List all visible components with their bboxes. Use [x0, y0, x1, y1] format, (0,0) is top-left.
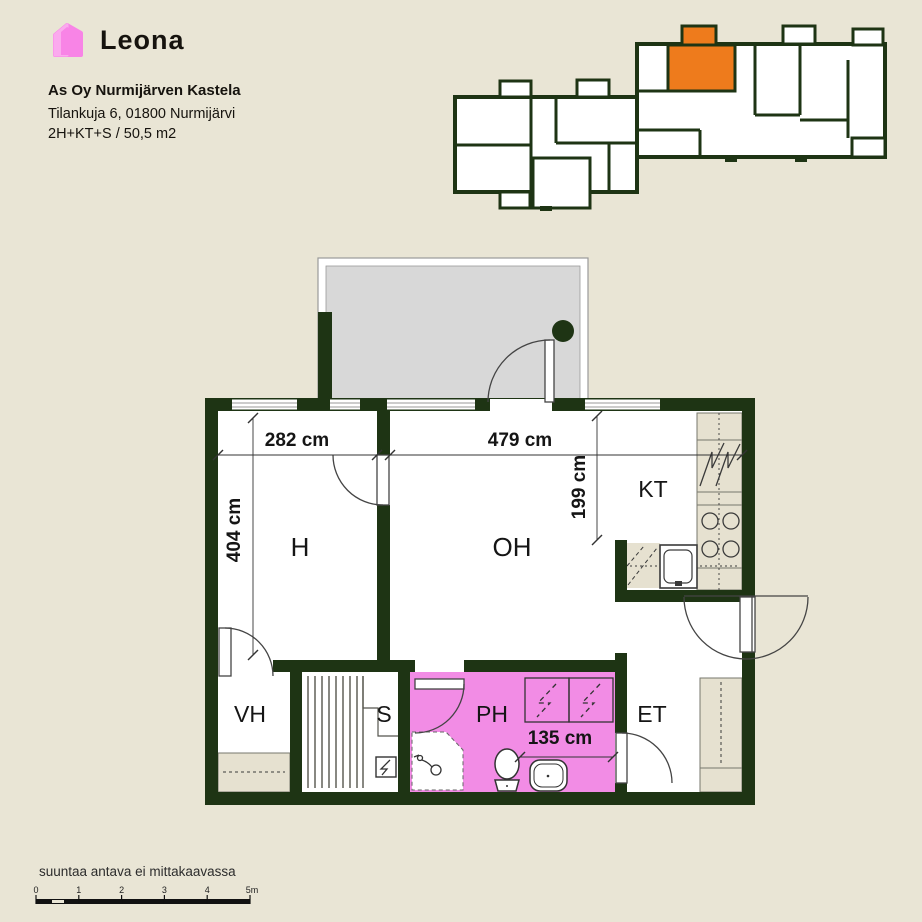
plan-canvas: 282 cm 479 cm 404 cm 199 cm 135 cm H OH … [0, 0, 922, 922]
scale-4: 4 [205, 885, 210, 895]
dim-ph-width: 135 cm [528, 728, 592, 749]
scale-0: 0 [33, 885, 38, 895]
dim-oh-width: 479 cm [488, 430, 552, 451]
room-label-kt: KT [638, 476, 667, 502]
room-label-h: H [291, 532, 310, 562]
site-plan [455, 26, 885, 211]
highlighted-unit [668, 26, 735, 91]
room-label-ph: PH [476, 701, 508, 727]
room-label-vh: VH [234, 701, 266, 727]
floorplan-page: Leona As Oy Nurmijärven Kastela Tilankuj… [0, 0, 922, 922]
scale-5m: 5m [246, 885, 259, 895]
kitchen-sink-icon [660, 545, 697, 588]
scale-3: 3 [162, 885, 167, 895]
sauna-heater-icon [376, 757, 396, 777]
washbasin-icon [530, 760, 567, 791]
room-label-s: S [376, 701, 391, 727]
balcony-pillar [552, 320, 574, 342]
scale-1: 1 [76, 885, 81, 895]
scale-2: 2 [119, 885, 124, 895]
room-label-oh: OH [493, 532, 532, 562]
dim-h-width: 282 cm [265, 430, 329, 451]
dim-kt-depth: 199 cm [569, 455, 590, 519]
room-label-et: ET [637, 701, 666, 727]
disclaimer-text: suuntaa antava ei mittakaavassa [39, 864, 236, 879]
toilet-icon [495, 749, 519, 791]
dim-h-depth: 404 cm [224, 498, 245, 562]
scale-bar: 0 1 2 3 4 5m [33, 885, 258, 904]
